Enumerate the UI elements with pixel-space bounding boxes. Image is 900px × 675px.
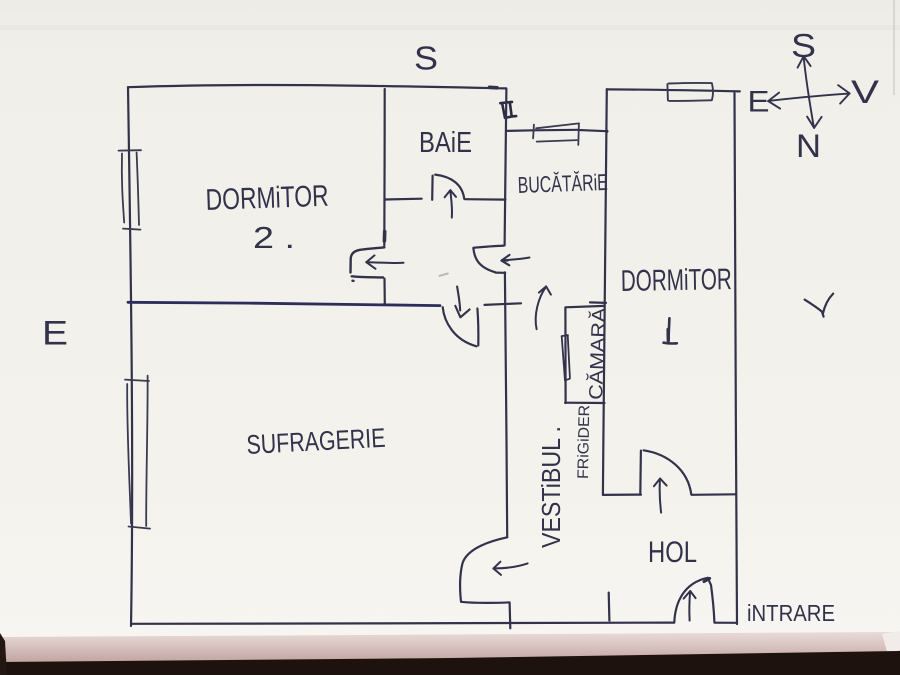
svg-text:DORMiTOR: DORMiTOR xyxy=(205,180,329,217)
svg-text:CĂMARĂ: CĂMARĂ xyxy=(586,307,610,400)
svg-text:DORMiTOR: DORMiTOR xyxy=(621,263,733,298)
svg-text:E: E xyxy=(42,315,68,353)
svg-text:iNTRARE: iNTRARE xyxy=(747,600,835,626)
svg-text:FRiGiDER: FRiGiDER xyxy=(575,405,593,479)
svg-text:BAiE: BAiE xyxy=(419,127,472,159)
svg-text:S: S xyxy=(414,40,438,77)
svg-text:BUCĂTĂRiE: BUCĂTĂRiE xyxy=(517,169,608,198)
svg-text:E: E xyxy=(748,86,770,119)
svg-text:V: V xyxy=(851,74,880,110)
svg-text:VESTiBUL .: VESTiBUL . xyxy=(536,426,566,548)
svg-text:2 .: 2 . xyxy=(253,220,295,255)
svg-text:N: N xyxy=(796,128,821,164)
svg-text:HOL: HOL xyxy=(648,536,697,569)
svg-text:S: S xyxy=(791,27,816,64)
